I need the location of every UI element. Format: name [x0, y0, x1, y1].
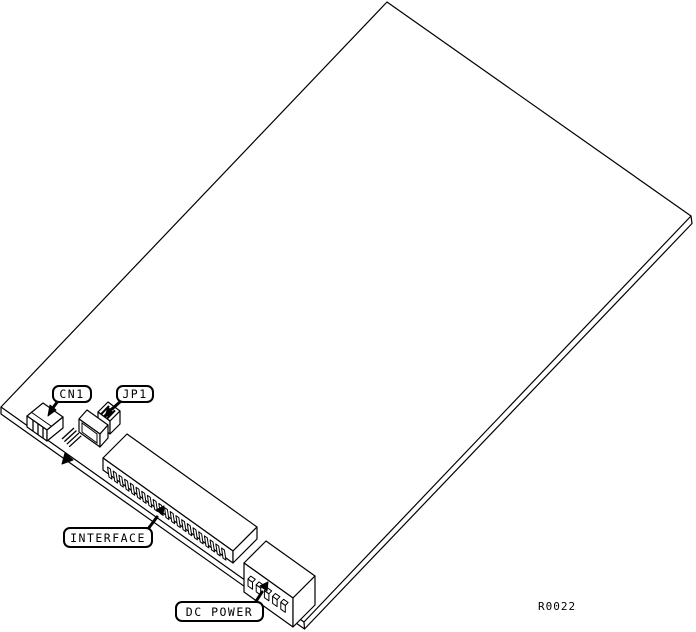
callout-dc-power-label: DC POWER [186, 605, 253, 619]
diagram-canvas: CN1 JP1 INTERFACE DC POWER R0022 [0, 0, 696, 632]
callout-dc-power: DC POWER [175, 601, 264, 622]
callout-interface-label: INTERFACE [70, 531, 146, 545]
callout-jp1: JP1 [116, 385, 154, 403]
callout-jp1-label: JP1 [122, 387, 147, 401]
callout-interface: INTERFACE [63, 527, 153, 548]
callout-cn1: CN1 [52, 385, 92, 403]
callout-cn1-label: CN1 [59, 387, 84, 401]
drawing-number: R0022 [538, 600, 576, 613]
